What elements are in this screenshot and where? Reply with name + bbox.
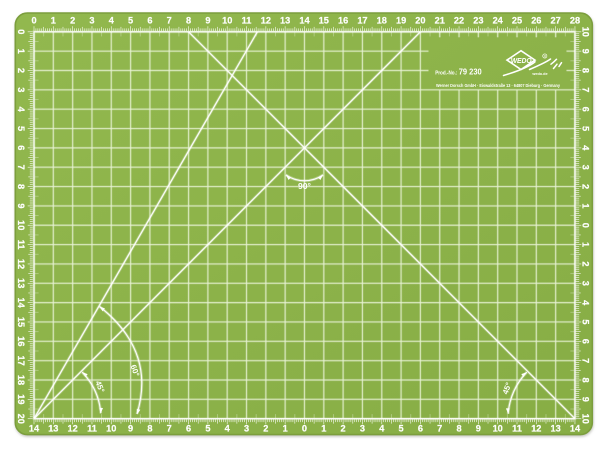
- svg-text:12: 12: [16, 259, 26, 269]
- svg-text:8: 8: [186, 16, 191, 26]
- svg-text:16: 16: [16, 336, 26, 346]
- svg-text:13: 13: [551, 424, 561, 434]
- svg-text:1: 1: [581, 203, 591, 208]
- svg-text:6: 6: [147, 16, 152, 26]
- svg-text:9: 9: [581, 49, 591, 54]
- svg-text:6: 6: [16, 145, 26, 150]
- svg-text:3: 3: [581, 165, 591, 170]
- svg-text:7: 7: [167, 424, 172, 434]
- svg-text:20: 20: [16, 414, 26, 424]
- svg-text:2: 2: [263, 424, 268, 434]
- svg-text:15: 15: [319, 16, 329, 26]
- svg-text:2: 2: [581, 184, 591, 189]
- svg-text:9: 9: [128, 424, 133, 434]
- svg-text:13: 13: [16, 278, 26, 288]
- svg-text:8: 8: [16, 184, 26, 189]
- svg-text:0: 0: [302, 424, 307, 434]
- svg-text:9: 9: [476, 424, 481, 434]
- svg-text:12: 12: [68, 424, 78, 434]
- svg-text:5: 5: [581, 319, 591, 324]
- svg-text:7: 7: [581, 358, 591, 363]
- svg-text:18: 18: [16, 375, 26, 385]
- svg-text:17: 17: [16, 356, 26, 366]
- svg-text:8: 8: [581, 68, 591, 73]
- svg-text:2: 2: [16, 68, 26, 73]
- svg-text:19: 19: [16, 394, 26, 404]
- svg-text:12: 12: [531, 424, 541, 434]
- svg-text:14: 14: [16, 298, 26, 309]
- svg-text:WEDO: WEDO: [511, 56, 532, 65]
- svg-text:2: 2: [341, 424, 346, 434]
- svg-text:6: 6: [581, 339, 591, 344]
- svg-text:1: 1: [321, 424, 326, 434]
- svg-text:11: 11: [512, 424, 522, 434]
- svg-text:7: 7: [581, 87, 591, 92]
- svg-text:17: 17: [357, 16, 367, 26]
- svg-text:1: 1: [51, 16, 56, 26]
- svg-text:14: 14: [570, 424, 581, 434]
- svg-text:4: 4: [225, 424, 231, 434]
- svg-text:28: 28: [570, 16, 580, 26]
- svg-text:7: 7: [167, 16, 172, 26]
- svg-text:9: 9: [16, 203, 26, 208]
- svg-text:13: 13: [48, 424, 58, 434]
- svg-text:10: 10: [16, 220, 26, 230]
- svg-text:1: 1: [581, 242, 591, 247]
- svg-text:8: 8: [147, 424, 152, 434]
- svg-text:10: 10: [581, 414, 591, 424]
- svg-text:8: 8: [581, 377, 591, 382]
- svg-text:14: 14: [29, 424, 40, 434]
- svg-text:0: 0: [31, 16, 36, 26]
- svg-text:16: 16: [338, 16, 348, 26]
- svg-text:3: 3: [89, 16, 94, 26]
- svg-text:22: 22: [454, 16, 464, 26]
- svg-text:3: 3: [16, 87, 26, 92]
- svg-text:11: 11: [242, 16, 252, 26]
- svg-text:19: 19: [396, 16, 406, 26]
- svg-text:1: 1: [283, 424, 288, 434]
- svg-text:7: 7: [16, 165, 26, 170]
- svg-text:26: 26: [531, 16, 541, 26]
- svg-text:Werner Dorsch GmbH · Eiswaldst: Werner Dorsch GmbH · Eiswaldstraße 13 · …: [436, 83, 560, 88]
- svg-text:5: 5: [399, 424, 404, 434]
- svg-text:2: 2: [581, 261, 591, 266]
- svg-text:wedo.de: wedo.de: [531, 72, 547, 76]
- svg-text:5: 5: [128, 16, 133, 26]
- svg-text:18: 18: [377, 16, 387, 26]
- svg-text:6: 6: [418, 424, 423, 434]
- svg-text:15: 15: [16, 317, 26, 327]
- svg-text:0: 0: [581, 223, 591, 228]
- svg-text:6: 6: [581, 107, 591, 112]
- svg-text:12: 12: [261, 16, 271, 26]
- svg-text:10: 10: [581, 27, 591, 37]
- svg-text:11: 11: [87, 424, 97, 434]
- svg-text:27: 27: [551, 16, 561, 26]
- svg-text:10: 10: [222, 16, 232, 26]
- svg-text:24: 24: [493, 16, 504, 26]
- svg-text:9: 9: [581, 397, 591, 402]
- svg-text:7: 7: [437, 424, 442, 434]
- svg-text:10: 10: [106, 424, 116, 434]
- svg-text:21: 21: [435, 16, 445, 26]
- svg-text:25: 25: [512, 16, 522, 26]
- svg-text:23: 23: [473, 16, 483, 26]
- svg-text:2: 2: [70, 16, 75, 26]
- svg-text:4: 4: [109, 16, 115, 26]
- svg-text:0: 0: [16, 29, 26, 34]
- svg-text:20: 20: [415, 16, 425, 26]
- svg-text:1: 1: [16, 49, 26, 54]
- svg-text:13: 13: [280, 16, 290, 26]
- svg-text:6: 6: [186, 424, 191, 434]
- svg-text:9: 9: [205, 16, 210, 26]
- svg-text:4: 4: [581, 300, 591, 306]
- svg-text:90°: 90°: [298, 181, 312, 191]
- svg-text:5: 5: [581, 126, 591, 131]
- svg-text:10: 10: [493, 424, 503, 434]
- svg-text:11: 11: [16, 240, 26, 250]
- svg-text:8: 8: [456, 424, 461, 434]
- svg-text:3: 3: [360, 424, 365, 434]
- svg-text:5: 5: [16, 126, 26, 131]
- svg-text:14: 14: [299, 16, 310, 26]
- svg-text:3: 3: [581, 281, 591, 286]
- svg-text:4: 4: [16, 107, 26, 113]
- svg-text:4: 4: [581, 145, 591, 151]
- svg-text:3: 3: [244, 424, 249, 434]
- svg-text:5: 5: [205, 424, 210, 434]
- svg-text:4: 4: [379, 424, 385, 434]
